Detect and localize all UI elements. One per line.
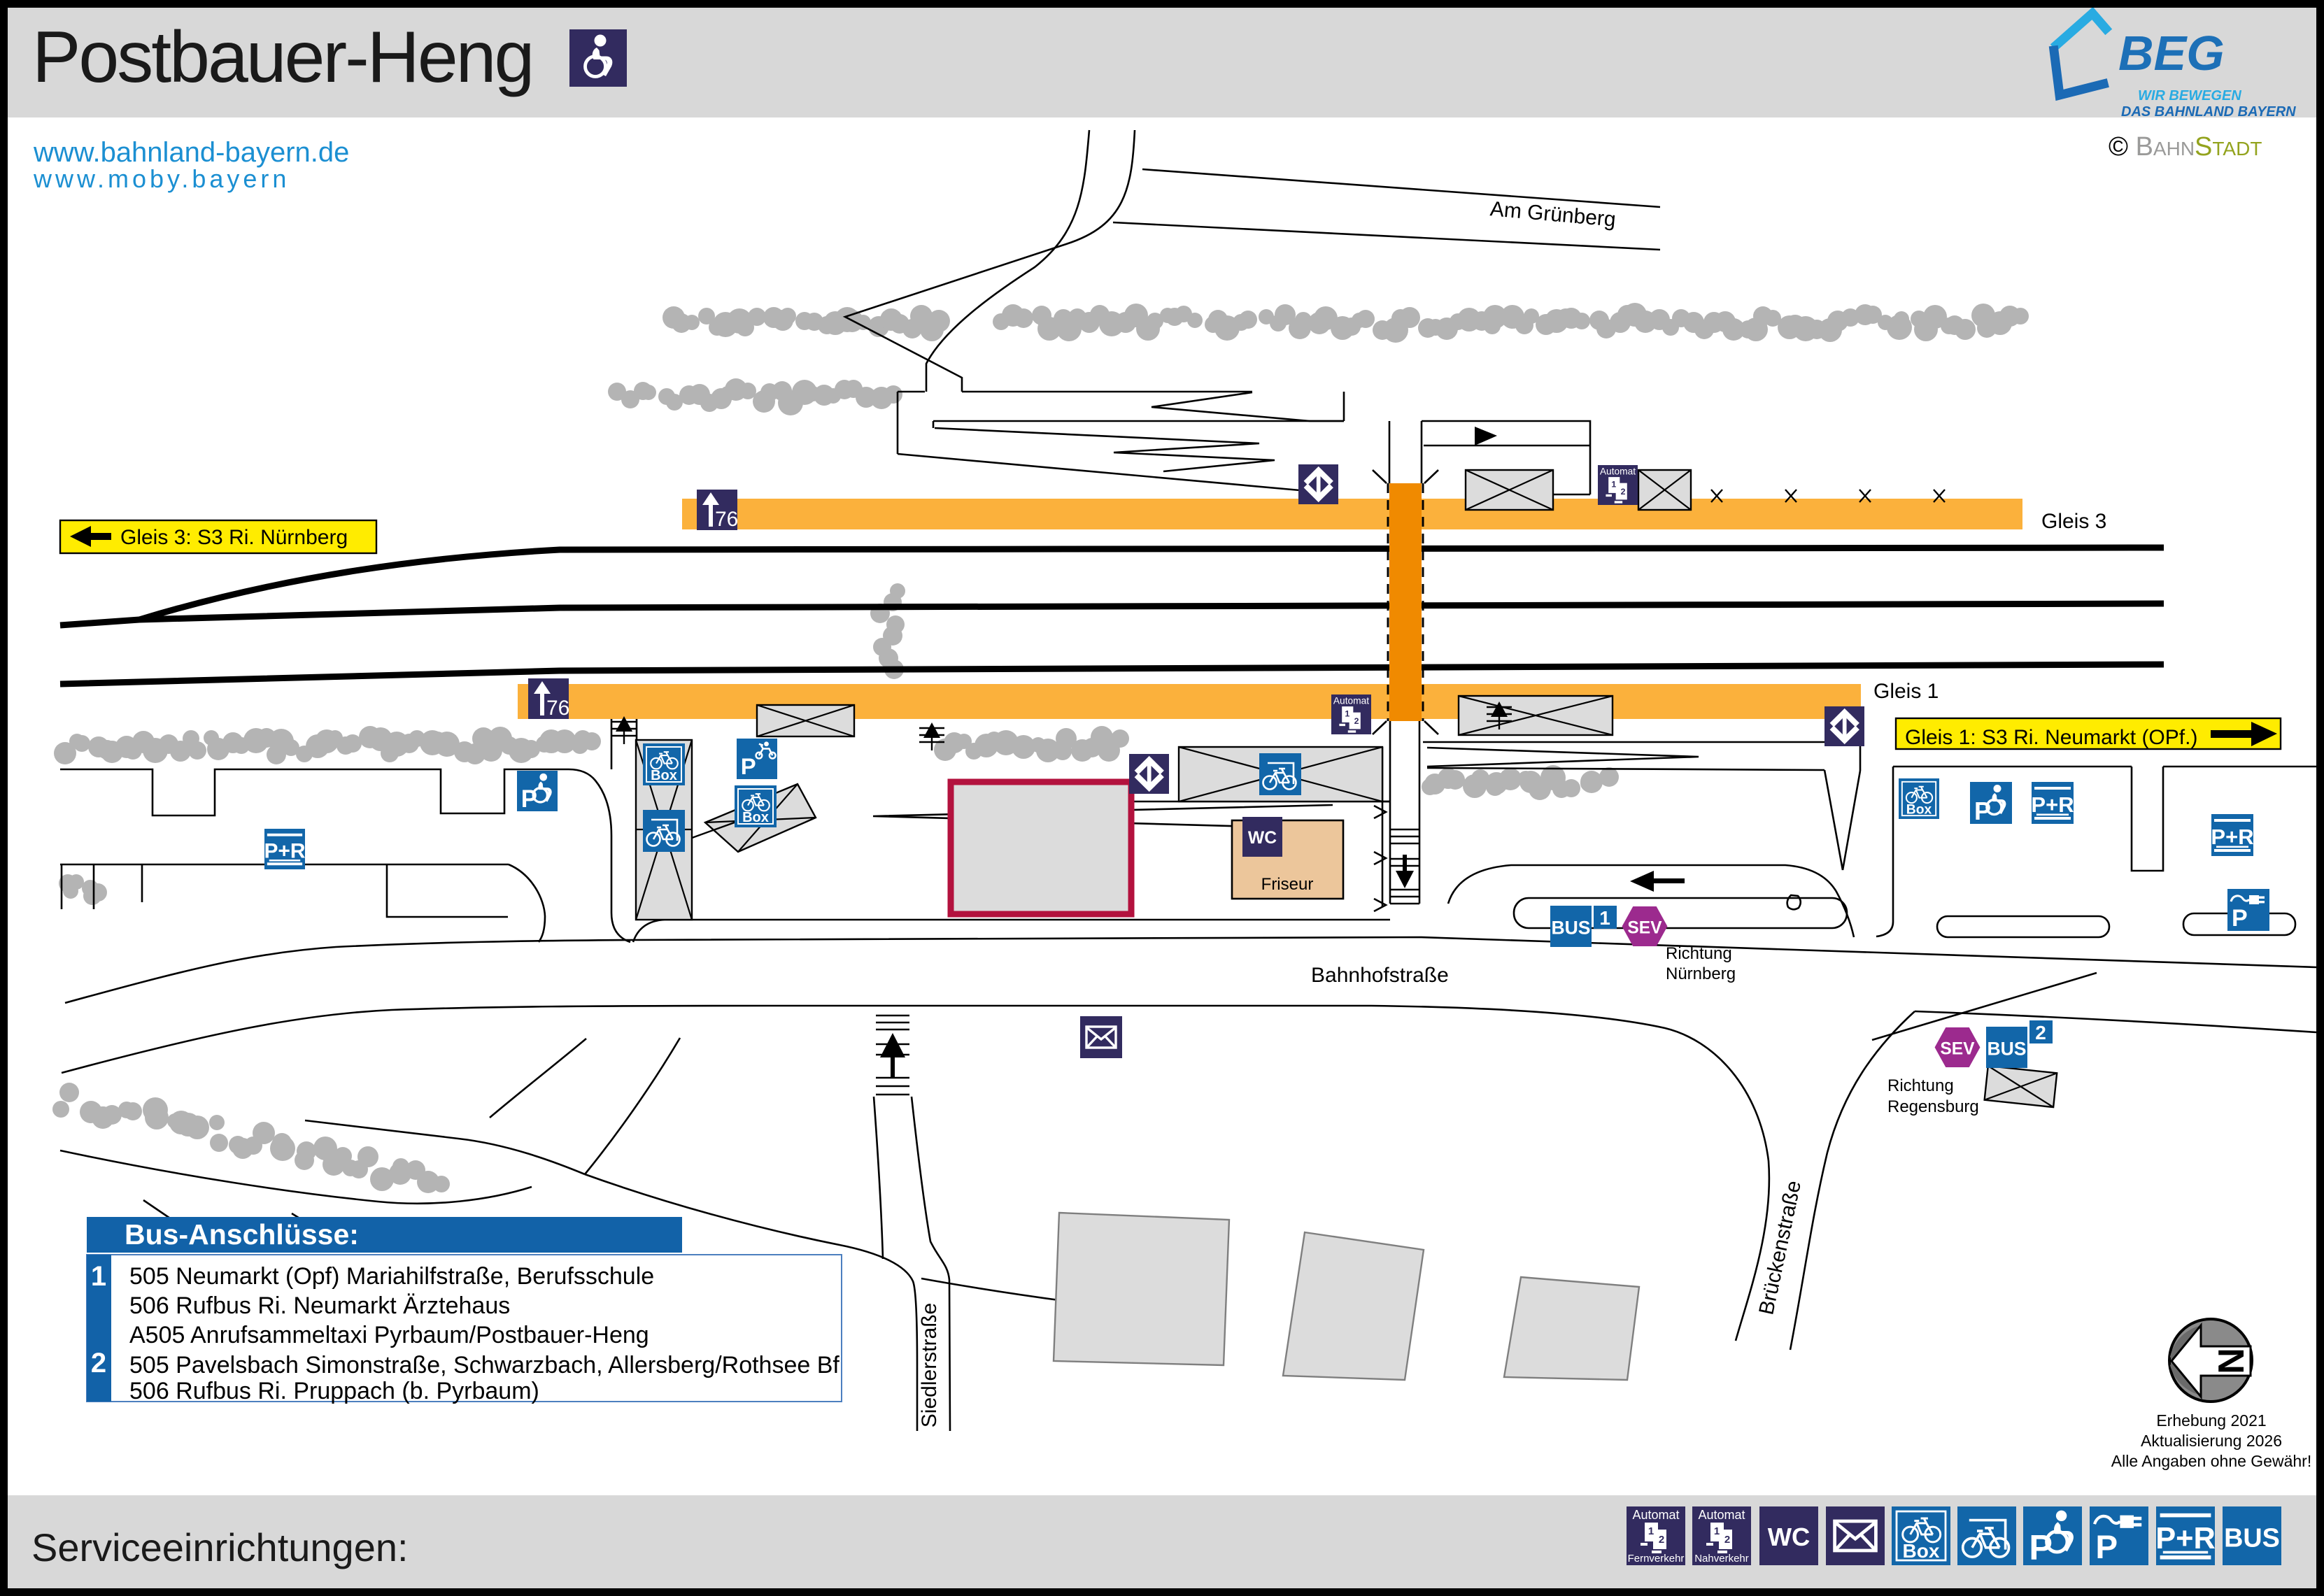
svg-text:Alle Angaben ohne Gewähr!: Alle Angaben ohne Gewähr! bbox=[2111, 1452, 2311, 1470]
svg-text:BEG: BEG bbox=[2118, 26, 2225, 80]
svg-text:1: 1 bbox=[91, 1261, 106, 1292]
svg-text:76: 76 bbox=[546, 697, 569, 720]
svg-text:www.bahnland-bayern.de: www.bahnland-bayern.de bbox=[33, 137, 349, 168]
svg-text:www.moby.bayern: www.moby.bayern bbox=[33, 164, 290, 193]
svg-text:DAS BAHNLAND BAYERN: DAS BAHNLAND BAYERN bbox=[2121, 104, 2296, 120]
svg-text:505 Pavelsbach Simonstraße, Sc: 505 Pavelsbach Simonstraße, Schwarzbach,… bbox=[129, 1352, 839, 1378]
svg-text:Gleis 1: Gleis 1 bbox=[1873, 680, 1939, 703]
svg-text:Nahverkehr: Nahverkehr bbox=[1694, 1553, 1749, 1565]
svg-text:N: N bbox=[2211, 1348, 2252, 1374]
svg-text:Fernverkehr: Fernverkehr bbox=[1628, 1553, 1685, 1565]
svg-text:Gleis 3: S3 Ri. Nürnberg: Gleis 3: S3 Ri. Nürnberg bbox=[120, 526, 348, 549]
svg-text:Gleis 3: Gleis 3 bbox=[2041, 510, 2106, 533]
svg-text:Nürnberg: Nürnberg bbox=[1666, 964, 1736, 983]
svg-text:506 Rufbus Ri. Neumarkt Ärzteh: 506 Rufbus Ri. Neumarkt Ärztehaus bbox=[129, 1292, 510, 1319]
svg-text:1: 1 bbox=[1599, 907, 1610, 929]
svg-text:2: 2 bbox=[2035, 1022, 2046, 1043]
svg-text:506 Rufbus Ri. Pruppach (b. Py: 506 Rufbus Ri. Pruppach (b. Pyrbaum) bbox=[129, 1378, 539, 1404]
svg-text:Richtung: Richtung bbox=[1666, 944, 1732, 963]
svg-text:76: 76 bbox=[715, 508, 738, 531]
svg-text:Serviceeinrichtungen:: Serviceeinrichtungen: bbox=[31, 1525, 409, 1569]
svg-text:Aktualisierung 2026: Aktualisierung 2026 bbox=[2141, 1432, 2282, 1450]
svg-text:Friseur: Friseur bbox=[1261, 875, 1314, 894]
svg-text:WIR BEWEGEN: WIR BEWEGEN bbox=[2138, 88, 2241, 104]
svg-text:Erhebung 2021: Erhebung 2021 bbox=[2156, 1411, 2266, 1430]
svg-text:Richtung: Richtung bbox=[1887, 1076, 1954, 1095]
svg-text:505 Neumarkt (Opf) Mariahilfst: 505 Neumarkt (Opf) Mariahilfstraße, Beru… bbox=[129, 1263, 654, 1290]
svg-text:Gleis 1: S3 Ri. Neumarkt (OPf.: Gleis 1: S3 Ri. Neumarkt (OPf.) bbox=[1905, 726, 2197, 749]
svg-text:Bus-Anschlüsse:: Bus-Anschlüsse: bbox=[125, 1218, 359, 1251]
svg-text:Postbauer-Heng: Postbauer-Heng bbox=[32, 17, 532, 98]
svg-text:2: 2 bbox=[91, 1348, 106, 1378]
svg-text:A505 Anrufsammeltaxi Pyrbaum/P: A505 Anrufsammeltaxi Pyrbaum/Postbauer-H… bbox=[129, 1322, 649, 1348]
svg-text:Regensburg: Regensburg bbox=[1887, 1097, 1979, 1116]
svg-text:Siedlerstraße: Siedlerstraße bbox=[918, 1303, 941, 1427]
svg-text:Bahnhofstraße: Bahnhofstraße bbox=[1311, 964, 1449, 987]
